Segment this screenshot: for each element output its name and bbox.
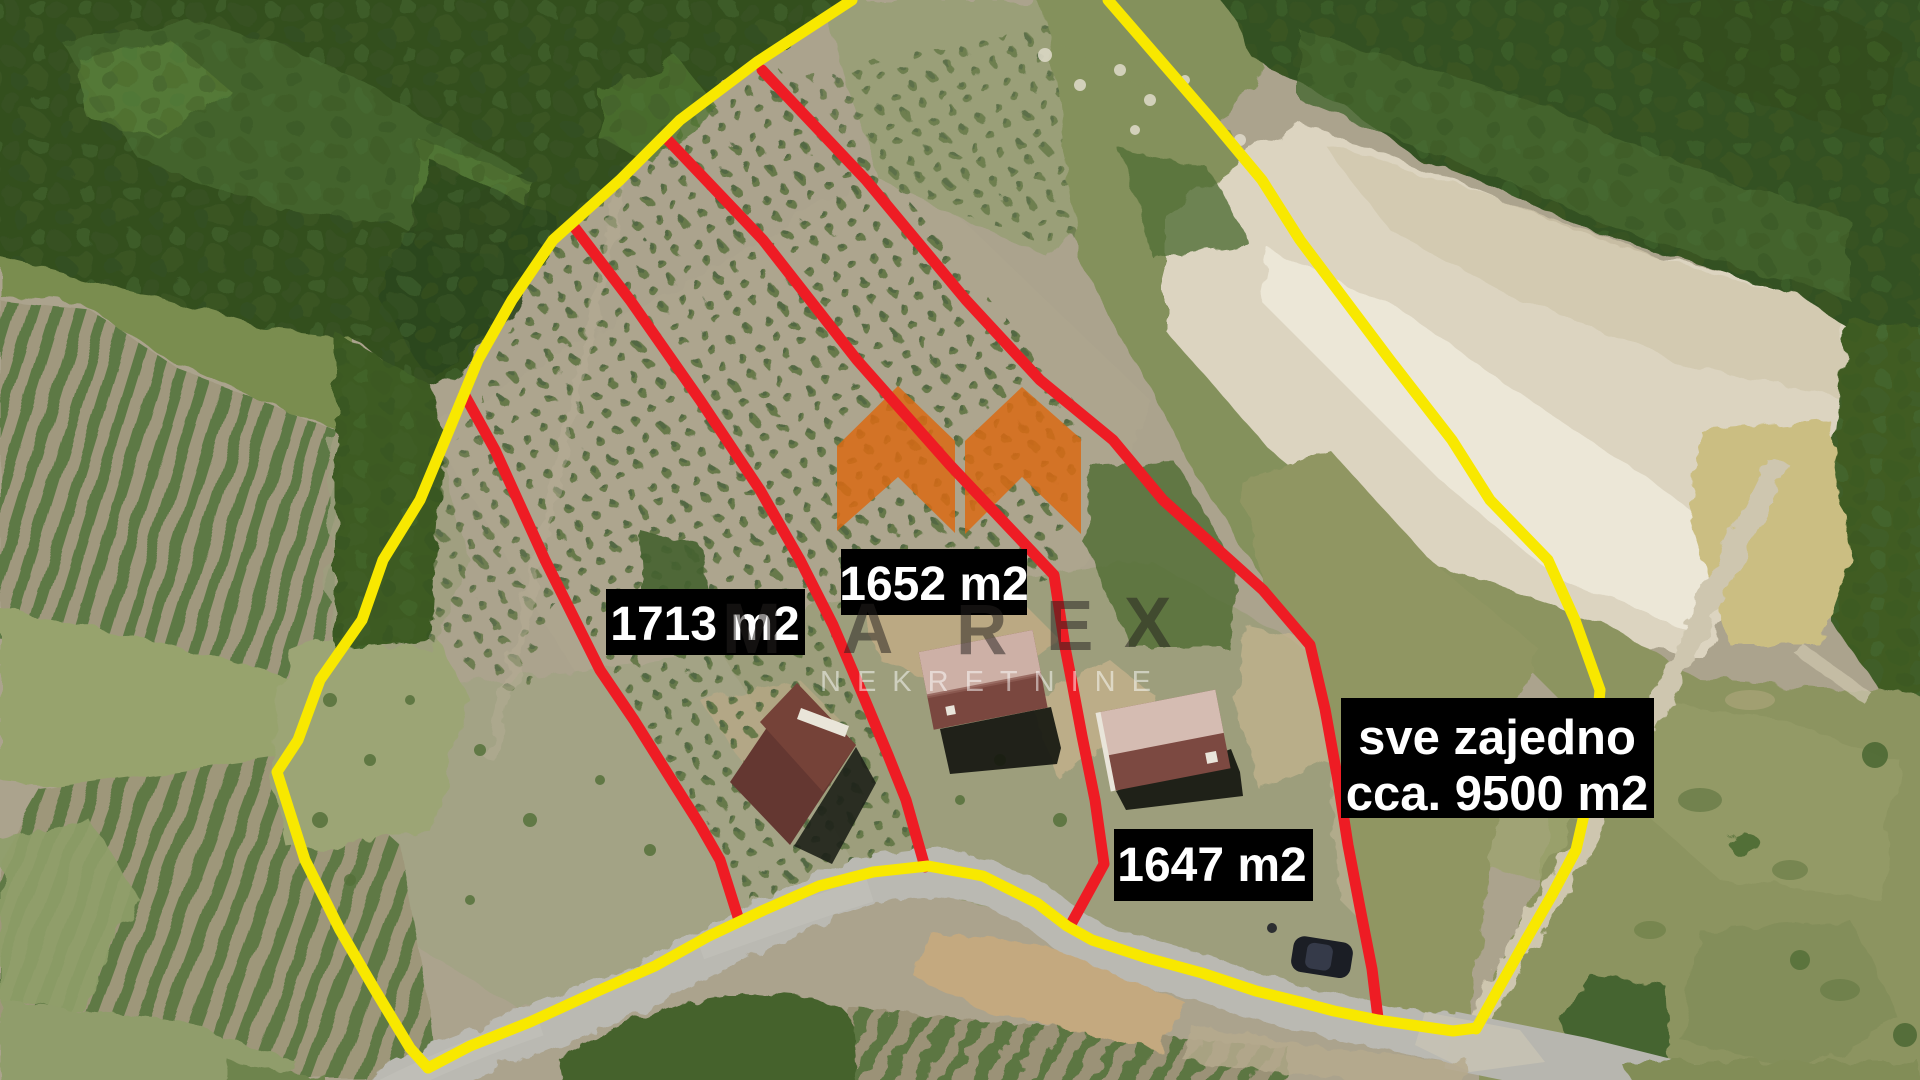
svg-text:M: M [722,590,781,669]
svg-text:R: R [956,591,1007,670]
svg-text:A: A [842,590,893,669]
svg-text:X: X [1124,584,1171,663]
svg-text:1647 m2: 1647 m2 [1117,839,1307,892]
svg-text:sve zajedno: sve zajedno [1358,711,1636,765]
svg-text:cca. 9500 m2: cca. 9500 m2 [1346,767,1648,821]
svg-text:NEKRETNINE: NEKRETNINE [820,666,1167,698]
svg-text:E: E [1046,587,1093,666]
